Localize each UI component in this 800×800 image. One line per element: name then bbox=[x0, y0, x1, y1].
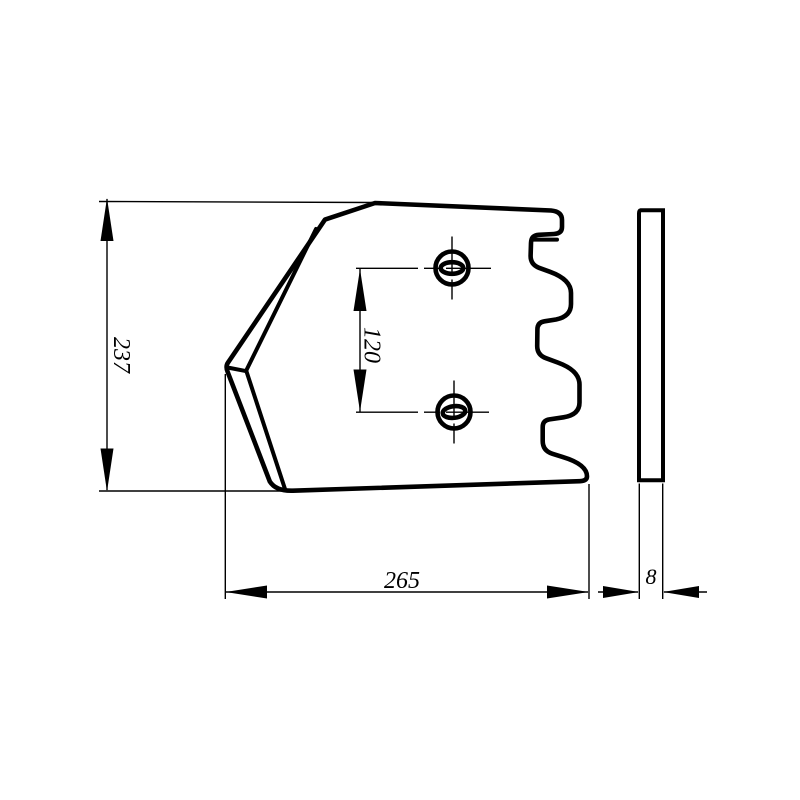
thickness-arrow-right bbox=[663, 586, 699, 598]
thickness-arrow-left bbox=[603, 586, 639, 598]
thickness-dimension-label: 8 bbox=[646, 564, 657, 589]
bevel-corner-ridge-line bbox=[228, 368, 247, 372]
dimension-height: 237 bbox=[99, 198, 373, 492]
height-extension-line-top bbox=[99, 202, 373, 203]
part-outline bbox=[227, 203, 587, 491]
height-arrow-up bbox=[101, 198, 114, 241]
width-dimension-label: 265 bbox=[384, 568, 420, 594]
dimension-hole-spacing: 120 bbox=[354, 269, 385, 412]
height-dimension-label: 237 bbox=[108, 337, 134, 374]
height-arrow-down bbox=[101, 449, 114, 492]
bevel-edge-line-upper bbox=[247, 229, 317, 370]
dimension-thickness: 8 bbox=[598, 484, 707, 600]
width-arrow-left bbox=[226, 586, 268, 599]
hole-spacing-arrow-down bbox=[354, 370, 367, 412]
width-arrow-right bbox=[547, 586, 589, 599]
hole-spacing-dimension-label: 120 bbox=[359, 327, 385, 363]
hole-spacing-arrow-up bbox=[354, 269, 367, 311]
side-view-outline bbox=[639, 210, 663, 480]
technical-drawing-canvas: 237 120 265 8 bbox=[0, 0, 800, 800]
side-view bbox=[639, 210, 663, 480]
front-view bbox=[227, 203, 587, 491]
blade-part-drawing: 237 120 265 8 bbox=[0, 0, 800, 800]
